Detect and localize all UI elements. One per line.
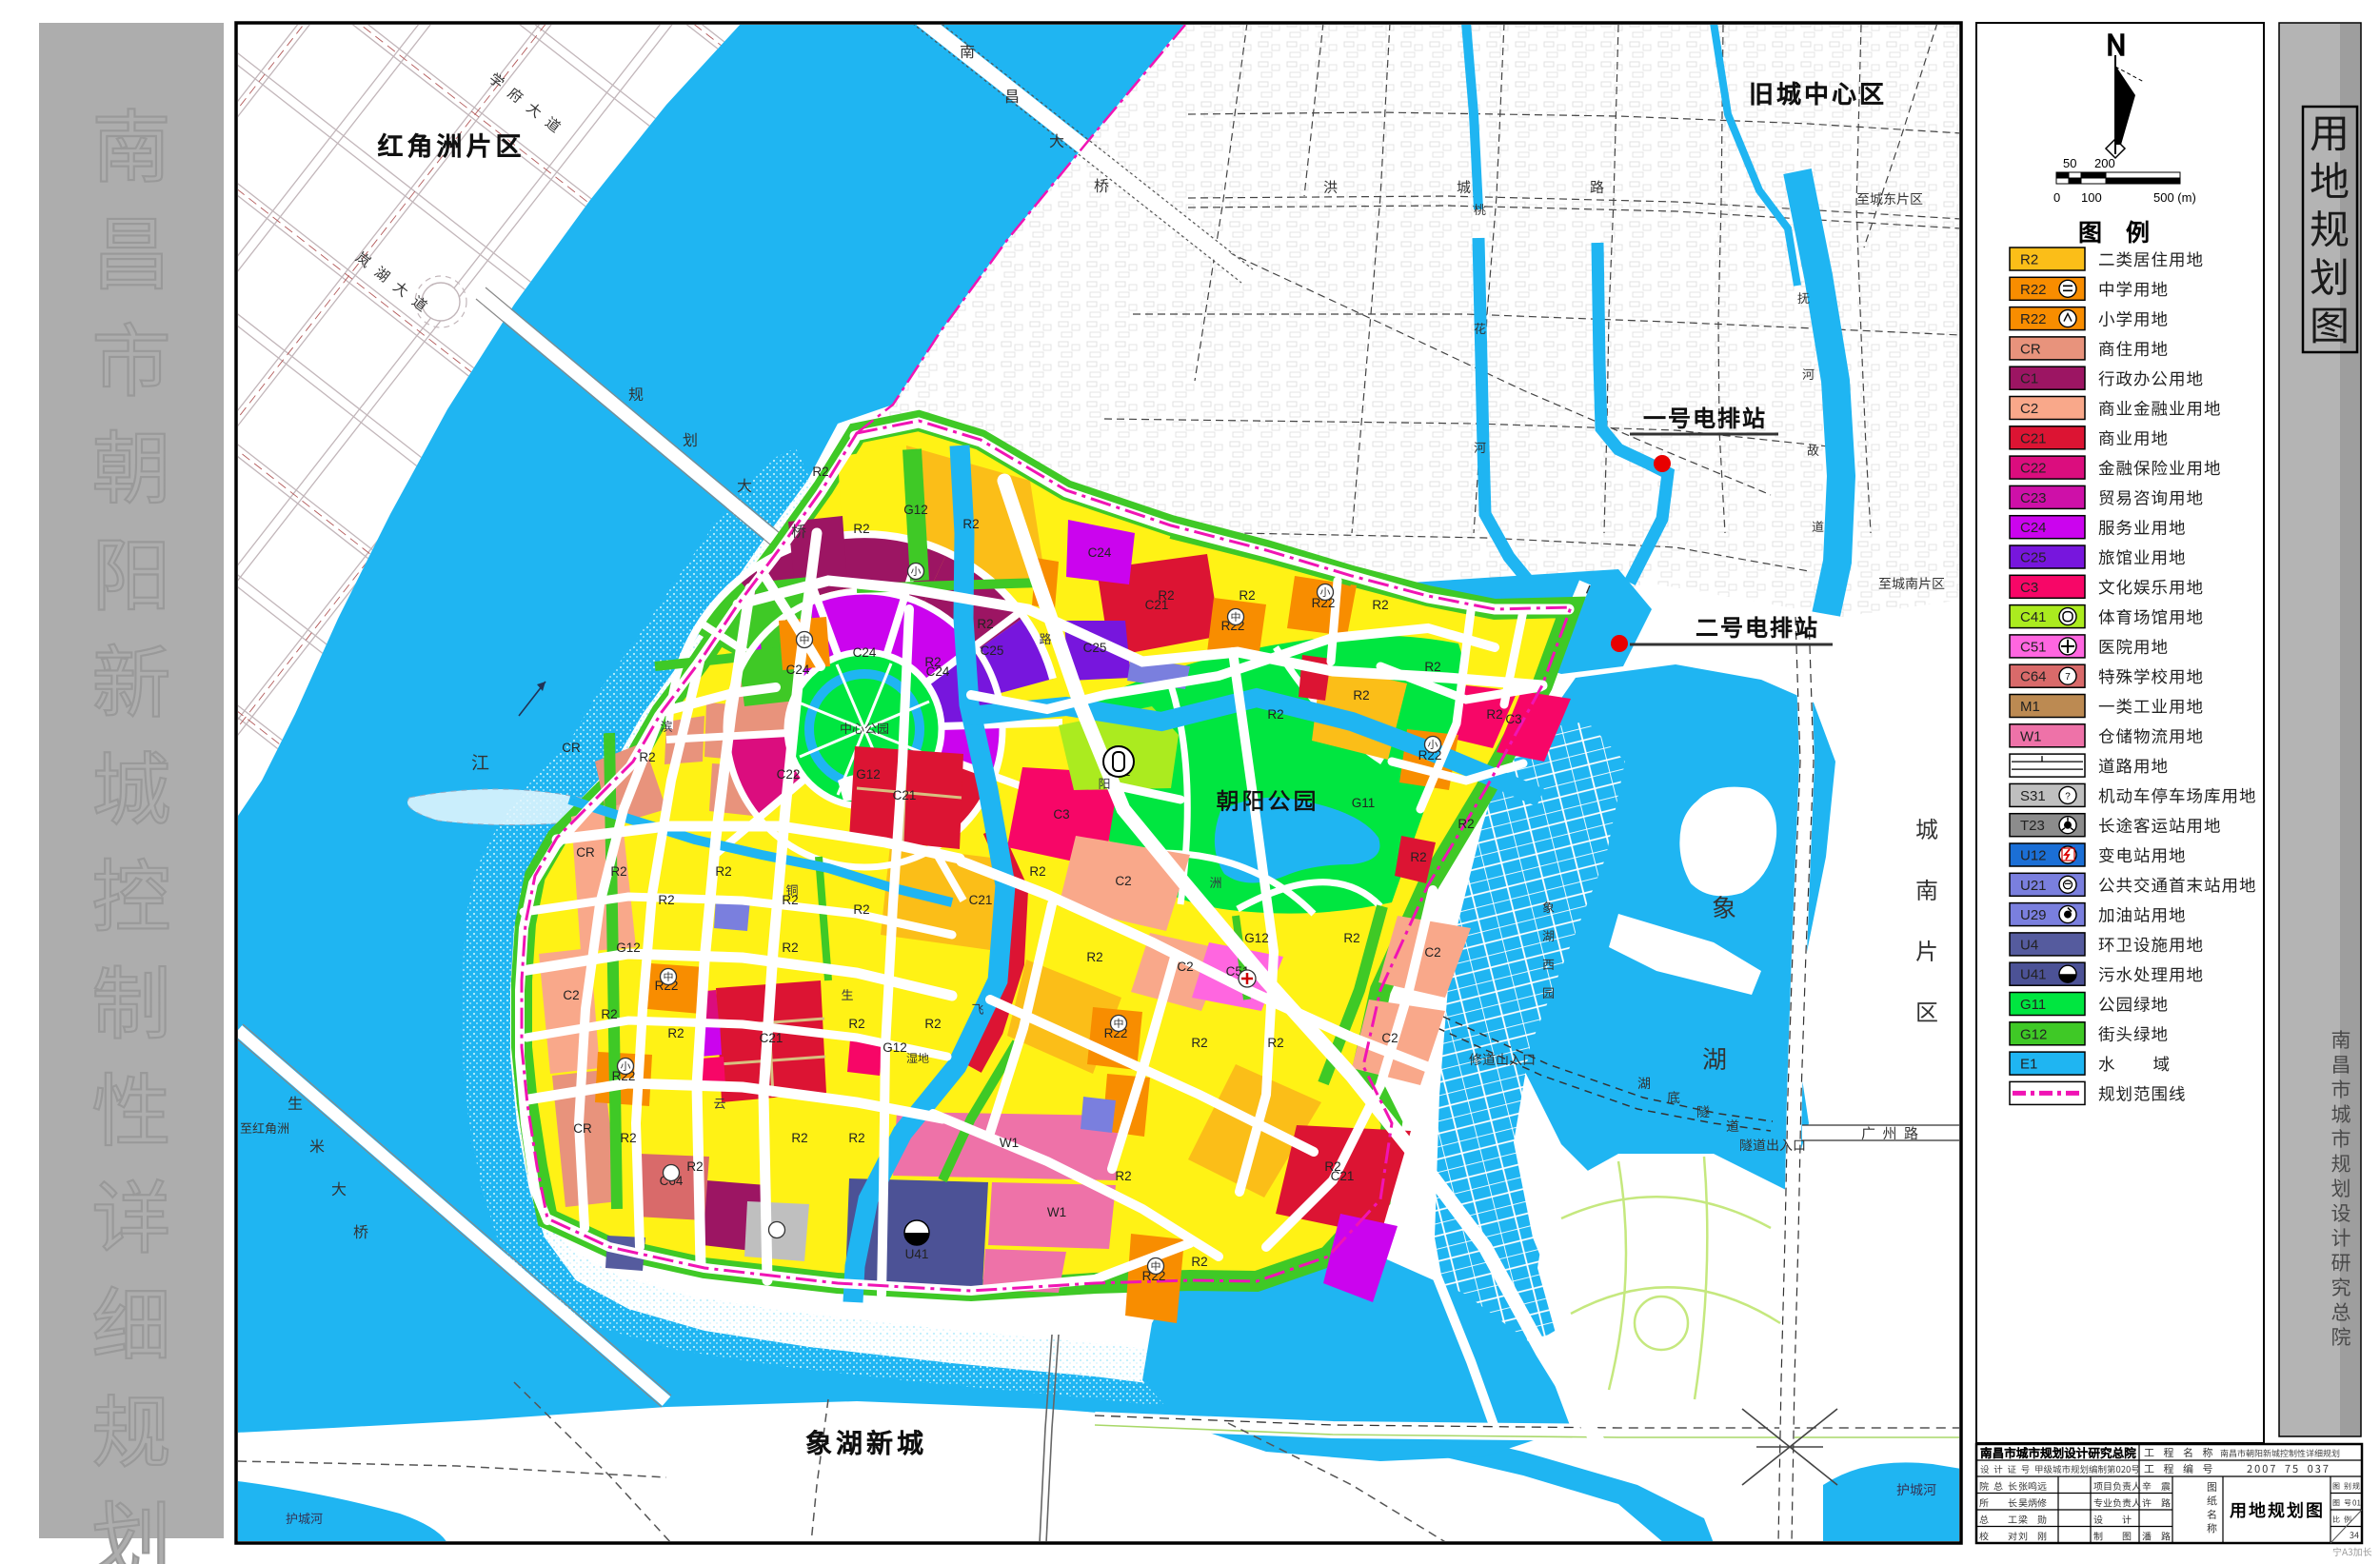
svg-text:G12: G12 [903, 503, 928, 517]
svg-text:S31: S31 [2020, 788, 2046, 804]
svg-text:R2: R2 [1458, 817, 1474, 831]
svg-text:T23: T23 [2020, 818, 2045, 834]
svg-text:CR: CR [576, 845, 595, 860]
svg-text:C21: C21 [1145, 598, 1169, 612]
svg-text:C2: C2 [1424, 945, 1440, 960]
svg-text:R2: R2 [610, 864, 626, 879]
svg-text:C3: C3 [1505, 712, 1521, 726]
svg-text:R2: R2 [853, 902, 869, 917]
svg-text:C2: C2 [563, 988, 579, 1002]
svg-text:0: 0 [2053, 190, 2060, 205]
svg-text:R2: R2 [686, 1159, 703, 1174]
svg-text:200: 200 [2094, 156, 2115, 170]
svg-text:C1: C1 [2020, 371, 2038, 387]
svg-text:C21: C21 [760, 1031, 783, 1045]
svg-text:R2: R2 [1191, 1036, 1207, 1050]
svg-text:R2: R2 [782, 893, 798, 907]
svg-text:R2: R2 [1115, 1169, 1131, 1183]
svg-text:C22: C22 [2020, 461, 2047, 477]
svg-text:G12: G12 [2020, 1026, 2047, 1042]
svg-text:R2: R2 [715, 864, 731, 879]
svg-text:R2: R2 [1343, 931, 1359, 945]
svg-text:R2: R2 [2020, 252, 2038, 268]
svg-text:U12: U12 [2020, 848, 2047, 864]
svg-text:C21: C21 [1331, 1169, 1355, 1183]
svg-text:C25: C25 [1083, 641, 1107, 655]
svg-text:C25: C25 [981, 643, 1004, 658]
svg-text:U4: U4 [2020, 937, 2038, 953]
svg-text:C2: C2 [1115, 874, 1131, 888]
svg-text:R22: R22 [2020, 311, 2047, 327]
svg-text:C23: C23 [2020, 490, 2047, 506]
svg-text:G12: G12 [616, 940, 641, 955]
svg-text:C21: C21 [969, 893, 993, 907]
svg-text:R2: R2 [1239, 588, 1255, 603]
svg-text:100: 100 [2081, 190, 2102, 205]
svg-text:C2: C2 [1177, 960, 1193, 974]
svg-text:R2: R2 [791, 1131, 807, 1145]
svg-text:R2: R2 [620, 1131, 636, 1145]
svg-text:CR: CR [573, 1121, 592, 1136]
svg-text:R2: R2 [1353, 688, 1369, 703]
svg-text:W1: W1 [1000, 1136, 1019, 1150]
svg-text:C3: C3 [2020, 580, 2038, 596]
svg-text:G12: G12 [856, 767, 881, 782]
svg-text:R2: R2 [1372, 598, 1388, 612]
svg-text:R2: R2 [977, 617, 993, 631]
svg-text:R2: R2 [1267, 707, 1283, 722]
svg-text:R2: R2 [962, 517, 979, 531]
svg-text:C24: C24 [926, 664, 950, 679]
svg-text:U21: U21 [2020, 878, 2047, 894]
svg-text:U29: U29 [2020, 907, 2047, 923]
svg-text:U41: U41 [2020, 967, 2047, 983]
svg-text:C51: C51 [2020, 639, 2047, 655]
svg-text:7: 7 [2065, 672, 2071, 683]
svg-text:C24: C24 [786, 663, 810, 677]
svg-text:R2: R2 [1410, 850, 1426, 864]
svg-text:R2: R2 [812, 465, 828, 479]
svg-text:R2: R2 [667, 1026, 684, 1040]
svg-text:C22: C22 [777, 767, 801, 782]
svg-text:M1: M1 [2020, 699, 2040, 715]
svg-text:C24: C24 [2020, 520, 2047, 536]
svg-text:W1: W1 [1047, 1205, 1066, 1219]
svg-text:C21: C21 [2020, 430, 2047, 446]
svg-text:R2: R2 [782, 940, 798, 955]
svg-text:?: ? [2065, 791, 2071, 802]
svg-text:R2: R2 [1267, 1036, 1283, 1050]
svg-text:C25: C25 [2020, 550, 2047, 566]
svg-text:R2: R2 [924, 1017, 941, 1031]
svg-text:C21: C21 [893, 788, 917, 802]
svg-text:C24: C24 [853, 645, 877, 660]
svg-text:G12: G12 [1244, 931, 1269, 945]
svg-text:C41: C41 [2020, 609, 2047, 625]
svg-text:R2: R2 [853, 522, 869, 536]
svg-text:R2: R2 [1029, 864, 1045, 879]
svg-text:G11: G11 [2020, 997, 2046, 1013]
svg-text:G12: G12 [883, 1040, 907, 1055]
svg-text:U41: U41 [905, 1247, 929, 1261]
svg-text:C2: C2 [2020, 401, 2038, 417]
svg-text:R2: R2 [658, 893, 674, 907]
svg-text:R22: R22 [2020, 282, 2047, 298]
svg-text:CR: CR [2020, 341, 2041, 357]
svg-text:R2: R2 [848, 1017, 864, 1031]
svg-text:R2: R2 [1086, 950, 1102, 964]
svg-text:C2: C2 [1381, 1031, 1398, 1045]
svg-text:R2: R2 [1486, 707, 1502, 722]
svg-text:R2: R2 [601, 1007, 617, 1021]
svg-text:W1: W1 [2020, 728, 2042, 744]
svg-text:C3: C3 [1053, 807, 1069, 822]
svg-text:50: 50 [2063, 156, 2076, 170]
svg-text:C64: C64 [2020, 669, 2047, 685]
svg-text:C24: C24 [1088, 545, 1112, 560]
svg-text:R2: R2 [848, 1131, 864, 1145]
svg-text:G11: G11 [1352, 796, 1376, 810]
svg-text:R2: R2 [1424, 660, 1440, 674]
svg-text:CR: CR [562, 741, 581, 755]
svg-text:R2: R2 [1191, 1255, 1207, 1269]
svg-text:E1: E1 [2020, 1057, 2037, 1073]
svg-text:500 (m): 500 (m) [2153, 190, 2196, 205]
svg-text:R2: R2 [639, 750, 655, 764]
